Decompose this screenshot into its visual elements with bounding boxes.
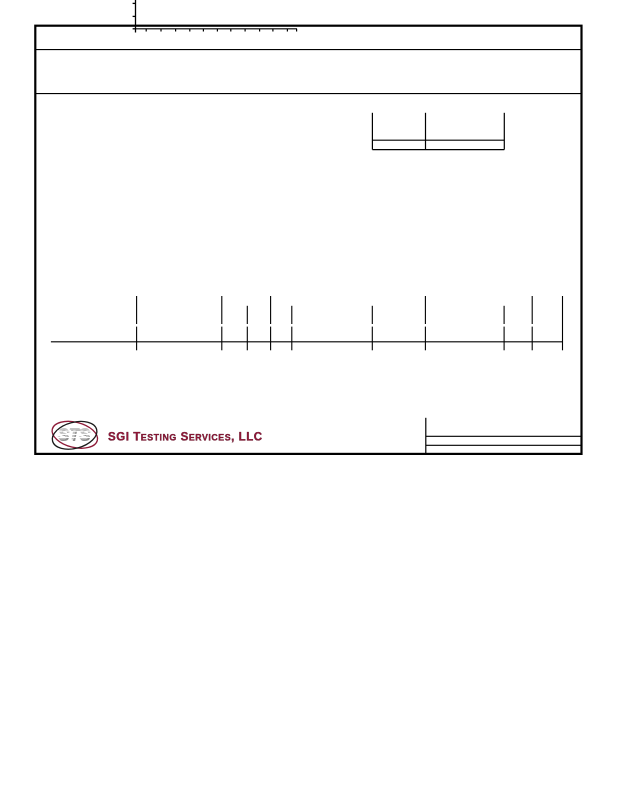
svg-text:SGI TESTING SERVICES, LLC: SGI TESTING SERVICES, LLC <box>108 431 263 443</box>
